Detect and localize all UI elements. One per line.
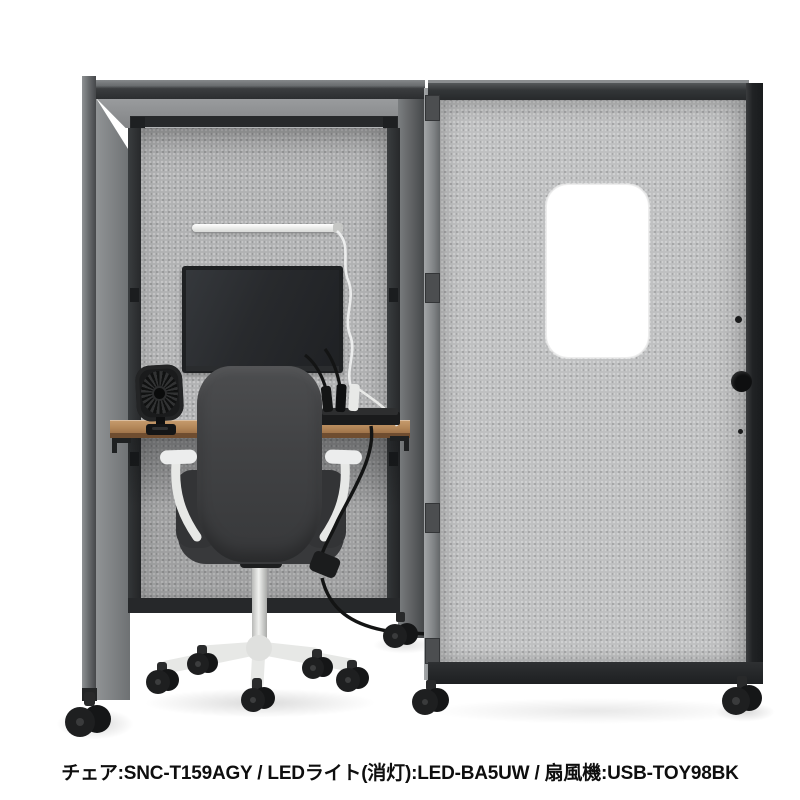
door-screw: [738, 429, 743, 434]
door-hinge-edge: [424, 88, 441, 680]
led-light-bar: [192, 224, 338, 232]
post-clip: [130, 288, 139, 302]
led-light-endcap: [333, 223, 343, 233]
monitor-screen: [186, 270, 339, 366]
door-knob: [731, 371, 752, 392]
door-hinge: [425, 638, 440, 664]
desk-bracket-right: [404, 436, 409, 451]
door-screw: [735, 316, 742, 323]
chair-base-legs: [167, 648, 350, 684]
chair-floor-shadow: [140, 688, 380, 718]
booth-left-panel-edge: [82, 76, 96, 700]
door-bottom-rail: [428, 662, 763, 684]
door-window-cutout: [546, 184, 649, 358]
desk-bracket-left: [112, 438, 117, 453]
door-hinge: [425, 273, 440, 303]
post-clip: [389, 288, 398, 302]
door-hinge: [425, 95, 440, 121]
product-caption: チェア:SNC-T159AGY / LEDライト(消灯):LED-BA5UW /…: [0, 760, 800, 788]
chair-gas-lift: [252, 560, 267, 652]
booth-top-frame: [82, 80, 425, 99]
door-top-frame: [428, 83, 749, 101]
product-photo: チェア:SNC-T159AGY / LEDライト(消灯):LED-BA5UW /…: [0, 0, 800, 800]
usb-fan-buttons: [152, 427, 168, 430]
door-floor-shadow: [430, 698, 760, 724]
booth-left-panel-foot: [82, 688, 97, 701]
product-photo-page: チェア:SNC-T159AGY / LEDライト(消灯):LED-BA5UW /…: [0, 0, 800, 800]
usb-fan-hub: [154, 388, 165, 399]
door-right-floor-shadow: [714, 702, 776, 722]
booth-left-floor-shadow: [55, 708, 135, 740]
booth-left-wall: [96, 98, 130, 700]
door-hinge: [425, 503, 440, 533]
chair-backrest: [197, 366, 322, 562]
